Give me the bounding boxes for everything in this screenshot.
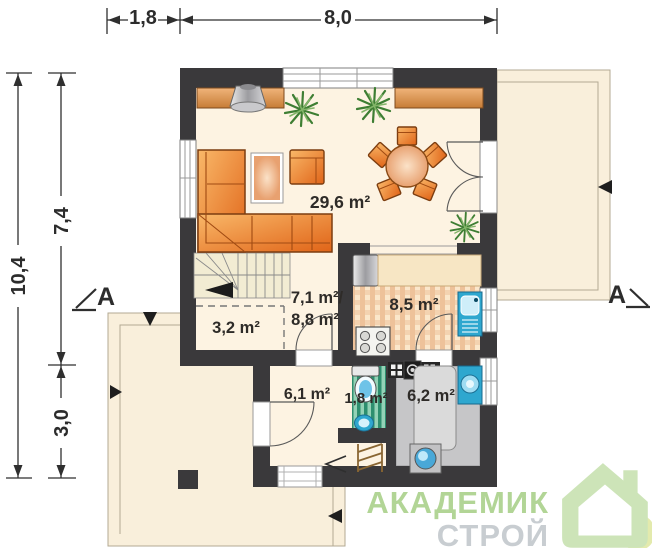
logo-text-line2: СТРОЙ <box>437 517 549 548</box>
logo-text-line1: АКАДЕМИК <box>366 485 549 520</box>
window-top <box>283 68 393 88</box>
dim-label-top-right: 8,0 <box>324 7 352 29</box>
washing-machine <box>410 444 441 473</box>
section-label-right: A <box>608 281 626 309</box>
room-label-hall-lower: 8,8 m² <box>291 311 339 329</box>
sideboard-right <box>395 88 483 108</box>
room-label-kitchen: 8,5 m² <box>389 295 438 314</box>
window-kitchen <box>480 288 497 332</box>
fridge <box>353 255 378 286</box>
room-label-storage: 3,2 m² <box>212 319 260 337</box>
dining-table <box>386 145 428 187</box>
section-marker-left: A <box>72 283 115 311</box>
dim-label-left-lower: 3,0 <box>51 409 73 437</box>
room-label-vestibule: 6,1 m² <box>284 386 330 403</box>
section-marker-right: A <box>608 281 650 309</box>
room-label-wc: 1,8 m² <box>344 390 387 407</box>
dim-label-top-left: 1,8 <box>129 7 157 29</box>
stairs <box>194 253 290 298</box>
dim-label-left-total: 10,4 <box>8 256 30 296</box>
section-label-left: A <box>97 283 115 311</box>
wc-sink <box>355 415 374 431</box>
water-heater <box>458 366 482 404</box>
coffee-table <box>251 153 283 203</box>
dim-label-left-upper: 7,4 <box>51 206 73 235</box>
stove <box>356 327 390 356</box>
kitchen-sink <box>458 292 482 336</box>
floor-plan-drawing: 29,6 m² 7,1 m²/ 8,8 m² 3,2 m² 8,5 m² 6,1… <box>0 0 652 548</box>
room-label-boiler: 6,2 m² <box>407 387 455 405</box>
terrace-column <box>178 470 198 489</box>
window-living-left <box>180 140 196 218</box>
boiler-tank <box>414 366 456 450</box>
room-label-living: 29,6 m² <box>310 192 370 212</box>
logo-house-icon <box>562 463 652 548</box>
room-label-hall-upper: 7,1 m²/ <box>291 289 344 307</box>
floor-plan-page: 29,6 m² 7,1 m²/ 8,8 m² 3,2 m² 8,5 m² 6,1… <box>0 0 652 548</box>
kitchen-counter <box>378 255 481 286</box>
armchair <box>290 150 324 184</box>
floor-lamp <box>230 84 266 112</box>
terrace-right <box>497 70 610 300</box>
window-boiler <box>480 358 497 405</box>
